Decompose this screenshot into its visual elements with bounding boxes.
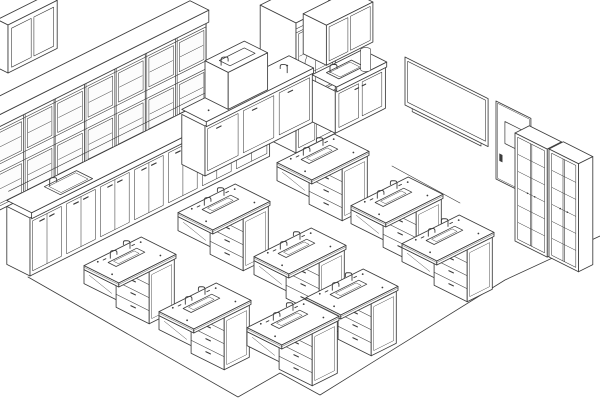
fixture-dot — [286, 65, 288, 67]
fixture-dot — [274, 335, 276, 337]
corner-wall-cabinet — [0, 0, 57, 73]
isometric-lab-drawing: Science laboratory classroom — isometric… — [0, 0, 600, 404]
fixture-dot — [478, 233, 480, 235]
fixture-dot — [362, 273, 364, 275]
board-frame — [405, 57, 488, 147]
fixture-dot — [378, 213, 380, 215]
door-handle — [500, 154, 503, 162]
fixture-dot — [290, 158, 292, 160]
fixture-dot — [191, 208, 193, 210]
fixture-dot — [323, 317, 325, 319]
fixture-dot — [111, 273, 113, 275]
fixture-dot — [140, 241, 142, 243]
lab-drawing-canvas — [0, 0, 600, 404]
cabinet-side — [0, 20, 8, 73]
run-side — [7, 206, 30, 276]
fixture-dot — [427, 195, 429, 197]
fixture-dot — [97, 261, 99, 263]
fixture-dot — [567, 211, 569, 213]
fixture-dot — [160, 255, 162, 257]
fixture-dot — [205, 220, 207, 222]
fixture-dot — [172, 307, 174, 309]
fixture-dot — [415, 239, 417, 241]
student-lab-table-9 — [247, 299, 339, 386]
fixture-dot — [333, 138, 335, 140]
fixture-dot — [303, 303, 305, 305]
paper-towel-roll — [361, 48, 371, 72]
fixture-dot — [458, 219, 460, 221]
fixture-dot — [281, 264, 283, 266]
fixture-dot — [333, 305, 335, 307]
fixture-dot — [310, 232, 312, 234]
fixture-dot — [429, 251, 431, 253]
fixture-dot — [559, 208, 561, 210]
fixture-dot — [234, 188, 236, 190]
fixture-dot — [527, 193, 529, 195]
fixture-dot — [364, 201, 366, 203]
fixture-dot — [407, 181, 409, 183]
fixture-dot — [353, 152, 355, 154]
storage-cabinet-right — [549, 142, 593, 272]
fixture-dot — [254, 202, 256, 204]
whiteboard — [405, 57, 488, 147]
fixture-dot — [260, 323, 262, 325]
fixture-dot — [235, 301, 237, 303]
fixture-dot — [215, 287, 217, 289]
fixture-dot — [304, 170, 306, 172]
fixture-dot — [330, 246, 332, 248]
fixture-dot — [534, 196, 536, 198]
fixture-dot — [186, 319, 188, 321]
cabinet-side — [579, 157, 593, 272]
fixture-dot — [382, 287, 384, 289]
fixture-dot — [319, 293, 321, 295]
fixture-dot — [208, 109, 210, 111]
fixture-dot — [267, 252, 269, 254]
